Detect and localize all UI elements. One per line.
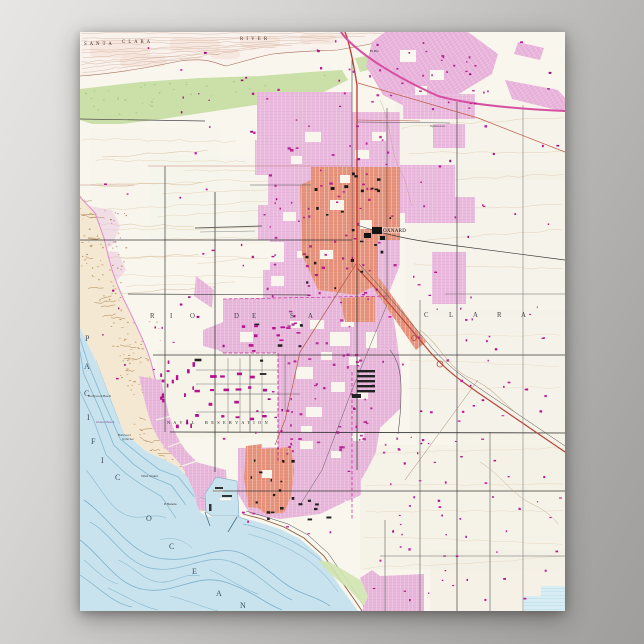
svg-text:O: O <box>190 313 195 320</box>
svg-text:Hollywood: Hollywood <box>118 434 131 437</box>
svg-text:O: O <box>146 514 152 523</box>
svg-text:R I V E R: R I V E R <box>240 37 268 42</box>
svg-text:A: A <box>521 312 526 319</box>
svg-text:C: C <box>115 473 120 482</box>
svg-text:El Rio: El Rio <box>370 49 379 53</box>
svg-text:R: R <box>497 312 502 319</box>
svg-text:N: N <box>240 601 246 610</box>
svg-text:Pt Hueneme: Pt Hueneme <box>164 503 178 506</box>
svg-text:A: A <box>216 589 222 598</box>
svg-text:C L A R A: C L A R A <box>122 40 151 45</box>
svg-text:Nyeland Acres: Nyeland Acres <box>430 125 445 128</box>
svg-text:A: A <box>308 313 313 320</box>
svg-text:E: E <box>192 567 197 576</box>
svg-text:E: E <box>252 313 256 320</box>
svg-text:I: I <box>101 456 104 465</box>
svg-text:P: P <box>85 334 90 343</box>
svg-text:L: L <box>449 312 453 319</box>
svg-text:N A V A L: N A V A L <box>167 420 196 425</box>
svg-text:A: A <box>473 312 478 319</box>
svg-text:C: C <box>424 312 429 319</box>
svg-text:S: S <box>290 313 294 320</box>
svg-text:A: A <box>84 362 90 371</box>
svg-text:R E S E R V A T I O N: R E S E R V A T I O N <box>205 420 269 425</box>
svg-text:OXNARD: OXNARD <box>383 229 406 234</box>
svg-text:S A N T A: S A N T A <box>84 42 113 47</box>
svg-text:by the Sea: by the Sea <box>122 438 134 441</box>
svg-text:D: D <box>234 313 239 320</box>
svg-text:I: I <box>87 413 90 422</box>
svg-text:C: C <box>169 542 174 551</box>
svg-text:Hollywood Beach: Hollywood Beach <box>88 394 112 398</box>
svg-text:Oxnard Beach: Oxnard Beach <box>96 420 115 424</box>
svg-text:R: R <box>150 313 155 320</box>
svg-text:F: F <box>91 437 96 446</box>
svg-text:Silver Strand: Silver Strand <box>141 474 158 478</box>
